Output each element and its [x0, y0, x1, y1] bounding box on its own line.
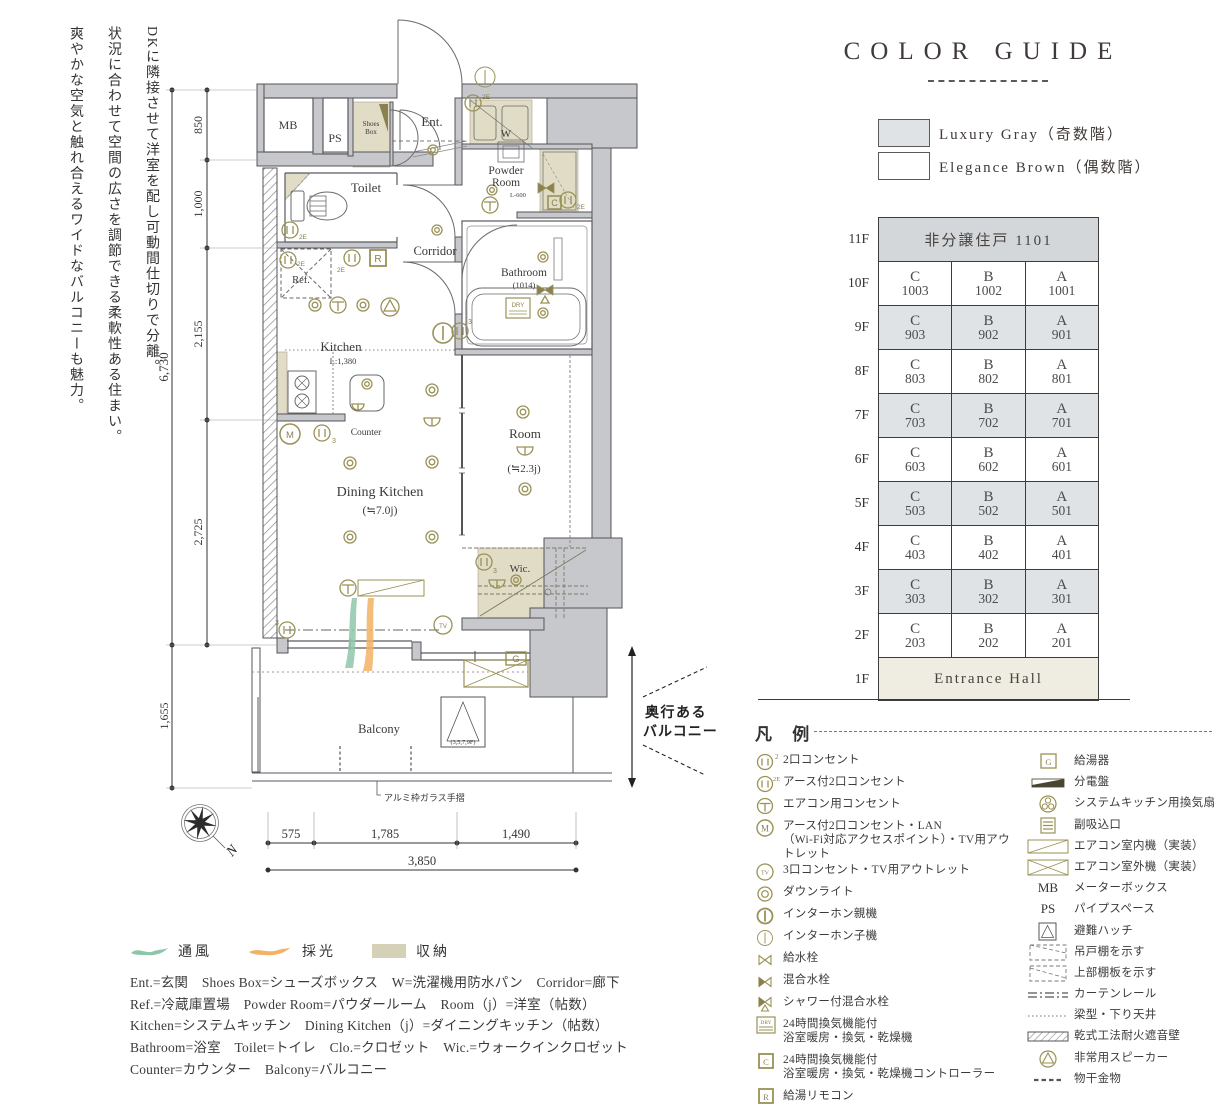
tv-outlet-icon: TV — [753, 861, 783, 881]
legend-item: インターホン親機 — [753, 905, 1013, 927]
svg-text:PS: PS — [328, 131, 341, 145]
svg-text:3: 3 — [275, 620, 279, 627]
handrail-note: アルミ枠ガラス手摺 — [377, 781, 465, 803]
emergency-speaker-icon — [1022, 1049, 1074, 1068]
svg-text:(≒2.3j): (≒2.3j) — [507, 463, 541, 475]
legend-item: 避難ハッチ — [1022, 922, 1222, 943]
svg-text:Room: Room — [509, 426, 541, 441]
intro-line-2: 状況に合わせて空間の広さを調節できる柔軟性ある住まい。 — [98, 26, 128, 456]
dry-unit-icon: DRY — [753, 1015, 783, 1037]
walls — [257, 84, 637, 697]
legend-item: 分電盤 — [1022, 773, 1222, 794]
table-row: 5F C503 B502 A501 — [835, 481, 1099, 525]
svg-text:3,850: 3,850 — [408, 854, 436, 868]
legend-item: 22口コンセント — [753, 751, 1013, 773]
abbreviation-notes: Ent.=玄関 Shoes Box=シューズボックス W=洗濯機用防水パン Co… — [130, 972, 690, 1081]
svg-text:M: M — [286, 430, 294, 441]
svg-text:(1014): (1014) — [513, 280, 536, 290]
table-row: 6F C603 B602 A601 — [835, 437, 1099, 481]
table-row: 8F C803 B802 A801 — [835, 349, 1099, 393]
color-guide-divider — [928, 80, 1048, 82]
table-row: 9F C903 B902 A901 — [835, 305, 1099, 349]
svg-text:C: C — [551, 198, 558, 208]
flow-brushes — [345, 598, 374, 671]
abbr-line: Ent.=玄関 Shoes Box=シューズボックス W=洗濯機用防水パン Co… — [130, 972, 690, 994]
svg-text:2,155: 2,155 — [191, 321, 205, 348]
svg-text:1,655: 1,655 — [157, 703, 171, 730]
abbr-line: Ref.=冷蔵庫置場 Powder Room=パウダールーム Room（j）=洋… — [130, 994, 690, 1016]
svg-text:1,785: 1,785 — [371, 827, 399, 841]
svg-text:DRY: DRY — [512, 303, 525, 309]
stove — [288, 371, 316, 413]
kitchen-sink — [350, 375, 384, 411]
table-row: 2F C203 B202 A201 — [835, 613, 1099, 657]
balcony-side-wall — [252, 648, 260, 772]
legend-item: 上部棚板を示す — [1022, 964, 1222, 985]
svg-text:575: 575 — [282, 827, 301, 841]
abbr-line: Bathroom=浴室 Toilet=トイレ Clo.=クロゼット Wic.=ウ… — [130, 1037, 690, 1059]
downlight-icon — [753, 883, 783, 903]
legend-title: 凡 例 — [755, 720, 817, 745]
svg-text:2E: 2E — [297, 261, 306, 268]
svg-text:3: 3 — [493, 568, 497, 575]
swatch-elegance-brown: Elegance Brown（偶数階） — [878, 152, 1152, 180]
abbr-line: Counter=カウンター Balcony=バルコニー — [130, 1059, 690, 1081]
ac-outdoor-icon — [1022, 858, 1074, 877]
multimedia-outlet-icon: M — [753, 817, 783, 837]
svg-text:L-600: L-600 — [510, 192, 526, 199]
airflow-stroke-icon — [130, 943, 170, 959]
ps-symbol: PS — [1022, 900, 1074, 917]
outlet-2e-icon: 2E — [753, 773, 783, 793]
ac-outlet-icon — [753, 795, 783, 815]
legend-item: R給湯リモコン — [753, 1087, 1013, 1109]
distribution-board-icon — [1022, 773, 1074, 792]
svg-text:1,000: 1,000 — [191, 191, 205, 218]
mb-symbol: MB — [1022, 879, 1074, 896]
table-row: 10F C1003 B1002 A1001 — [835, 261, 1099, 305]
sub-inlet-icon — [1022, 816, 1074, 835]
intercom-parent-icon — [753, 905, 783, 925]
legend-item: 吊戸棚を示す — [1022, 943, 1222, 964]
table-row: 11F 非分譲住戸 1101 — [835, 217, 1099, 261]
legend-item: エアコン用コンセント — [753, 795, 1013, 817]
svg-text:(3,5,7,9F): (3,5,7,9F) — [450, 739, 475, 746]
floor-plan: R C G DRY TV M 2E 2E 2E 2E 2E 3 3 3 3 — [150, 0, 740, 920]
compass: N — [182, 805, 242, 861]
svg-text:Counter: Counter — [351, 428, 382, 438]
dk-door — [403, 262, 455, 314]
legend-item: 副吸込口 — [1022, 816, 1222, 837]
svg-text:G: G — [1045, 757, 1051, 767]
legend-item: PSパイプスペース — [1022, 900, 1222, 921]
laundry-hardware-icon — [1022, 1070, 1074, 1089]
svg-text:2,725: 2,725 — [191, 519, 205, 546]
upper-shelf-icon — [1022, 964, 1074, 983]
legend-item: ダウンライト — [753, 883, 1013, 905]
svg-text:Dining Kitchen: Dining Kitchen — [337, 485, 424, 500]
svg-text:850: 850 — [191, 116, 205, 134]
svg-text:Powder: Powder — [488, 165, 523, 177]
dimensions: 6,730 850 1,000 2,155 2,725 1,655 575 1,… — [156, 88, 578, 872]
legend-item: 混合水栓 — [753, 971, 1013, 993]
legend-item: DRY24時間換気機能付浴室暖房・換気・乾燥機 — [753, 1015, 1013, 1051]
storage-swatch-icon — [372, 943, 406, 959]
legend-item: 給水栓 — [753, 949, 1013, 971]
outlet-2-icon: 2 — [753, 751, 783, 771]
svg-text:2E: 2E — [337, 267, 346, 274]
svg-text:アルミ枠ガラス手摺: アルミ枠ガラス手摺 — [384, 792, 465, 803]
svg-text:Ref.: Ref. — [292, 275, 310, 286]
mixed-tap-icon — [753, 971, 783, 991]
north-label: N — [223, 842, 242, 860]
abbr-line: Kitchen=システムキッチン Dining Kitchen（j）=ダイニング… — [130, 1015, 690, 1037]
svg-text:L:1,380: L:1,380 — [330, 356, 357, 366]
legend-item: システムキッチン用換気扇 — [1022, 794, 1222, 815]
legend-item: インターホン子機 — [753, 927, 1013, 949]
table-row: 4F C403 B402 A401 — [835, 525, 1099, 569]
water-heater-icon: G — [1022, 752, 1074, 771]
svg-text:MB: MB — [279, 118, 298, 132]
bathtub — [466, 288, 586, 346]
refrigerator-space — [281, 249, 331, 298]
svg-text:Toilet: Toilet — [351, 180, 382, 195]
svg-text:Shoes: Shoes — [363, 120, 380, 128]
svg-text:奥行ある: 奥行ある — [645, 704, 707, 720]
remote-icon: R — [753, 1087, 783, 1107]
fireproof-wall — [263, 168, 277, 638]
ac-indoor-icon — [1022, 837, 1074, 856]
svg-text:DRY: DRY — [760, 1020, 771, 1026]
svg-text:(≒7.0j): (≒7.0j) — [363, 505, 398, 517]
toilet-door — [403, 185, 455, 237]
color-guide-title: COLOR GUIDE — [833, 38, 1133, 66]
legend-item: MBメーターボックス — [1022, 879, 1222, 900]
evacuation-hatch-icon — [1022, 922, 1074, 941]
floor-stack-table: 11F 非分譲住戸 1101 10F C1003 B1002 A1001 9F … — [835, 217, 1099, 701]
legend-item: 梁型・下り天井 — [1022, 1006, 1222, 1027]
curtain-rail-icon — [1022, 985, 1074, 1004]
legend-item: TV3口コンセント・TV用アウトレット — [753, 861, 1013, 883]
table-row: 1F Entrance Hall — [835, 657, 1099, 701]
legend-item: シャワー付混合水栓 — [753, 993, 1013, 1015]
legend-item: 2Eアース付2口コンセント — [753, 773, 1013, 795]
svg-text:Kitchen: Kitchen — [320, 339, 362, 354]
svg-text:3: 3 — [332, 438, 336, 445]
legend-right-column: G給湯器 分電盤 システムキッチン用換気扇 副吸込口 エアコン室内機（実装） エ… — [1022, 752, 1222, 1091]
svg-text:R: R — [374, 254, 381, 265]
svg-text:バルコニー: バルコニー — [643, 723, 718, 739]
table-row: 7F C703 B702 A701 — [835, 393, 1099, 437]
table-underline — [758, 699, 1130, 700]
kitchen-side-storage — [277, 352, 287, 414]
legend-item: エアコン室内機（実装） — [1022, 837, 1222, 858]
svg-text:R: R — [763, 1092, 769, 1102]
daylight-brush — [363, 598, 374, 671]
brochure-page: { "intro": { "lines": [ "DKに隣接させて洋室を配し可動… — [0, 0, 1222, 1100]
hanging-cabinet-icon — [1022, 943, 1074, 962]
legend-item: 物干金物 — [1022, 1070, 1222, 1091]
gray-swatch — [878, 119, 930, 147]
svg-text:1,490: 1,490 — [502, 827, 530, 841]
svg-text:2E: 2E — [299, 234, 308, 241]
svg-text:Bathroom: Bathroom — [501, 267, 547, 279]
balcony-depth-annotation: 奥行ある バルコニー — [628, 646, 718, 788]
beam-ceiling-icon — [1022, 1006, 1074, 1025]
svg-text:W: W — [501, 128, 512, 140]
svg-text:Wic.: Wic. — [510, 563, 531, 575]
svg-text:2E: 2E — [577, 204, 586, 211]
legend-item: カーテンレール — [1022, 985, 1222, 1006]
legend-item: 乾式工法耐火遮音壁 — [1022, 1027, 1222, 1048]
svg-text:Balcony: Balcony — [358, 722, 400, 736]
svg-text:C: C — [763, 1057, 769, 1067]
table-row: 3F C303 B302 A301 — [835, 569, 1099, 613]
entrance-door — [398, 20, 462, 84]
swatch-luxury-gray: Luxury Gray（奇数階） — [878, 119, 1124, 147]
controller-icon: C — [753, 1051, 783, 1073]
legend-item: Mアース付2口コンセント・LAN（Wi-Fi対応アクセスポイント）・TV用アウト… — [753, 817, 1013, 861]
svg-text:TV: TV — [761, 871, 770, 877]
svg-text:6,730: 6,730 — [156, 352, 171, 381]
legend-item: エアコン室外機（実装） — [1022, 858, 1222, 879]
svg-text:2E: 2E — [482, 94, 491, 101]
daylight-stroke-icon — [248, 943, 292, 959]
shower-tap-icon — [753, 993, 783, 1013]
intercom-child-icon — [753, 927, 783, 947]
svg-text:M: M — [761, 824, 769, 834]
svg-text:3: 3 — [468, 319, 472, 326]
svg-text:2E: 2E — [773, 776, 780, 783]
legend-left-column: 22口コンセント 2Eアース付2口コンセント エアコン用コンセント Mアース付2… — [753, 751, 1013, 1109]
svg-text:Corridor: Corridor — [413, 244, 457, 258]
movable-partition — [459, 355, 465, 535]
legend-item: 非常用スピーカー — [1022, 1049, 1222, 1070]
towel-bar — [554, 238, 562, 280]
fire-wall-icon — [1022, 1027, 1074, 1046]
white-swatch — [878, 152, 930, 180]
svg-text:TV: TV — [439, 624, 447, 630]
svg-text:Ent.: Ent. — [421, 114, 442, 129]
svg-text:2: 2 — [775, 753, 779, 761]
legend-item: G給湯器 — [1022, 752, 1222, 773]
kitchen-fan-icon — [1022, 794, 1074, 813]
legend-item: C24時間換気機能付浴室暖房・換気・乾燥機コントローラー — [753, 1051, 1013, 1087]
airflow-brush — [345, 598, 357, 668]
flow-legend: 通風 採光 収納 — [130, 941, 450, 961]
intro-line-3: 爽やかな空気と触れ合えるワイドなバルコニーも魅力。 — [60, 26, 90, 456]
legend-divider — [814, 731, 1212, 732]
svg-text:Box: Box — [365, 128, 377, 136]
svg-text:Room: Room — [492, 177, 520, 189]
svg-text:G: G — [512, 654, 519, 665]
water-tap-icon — [753, 949, 783, 969]
toilet-tank — [291, 191, 304, 221]
